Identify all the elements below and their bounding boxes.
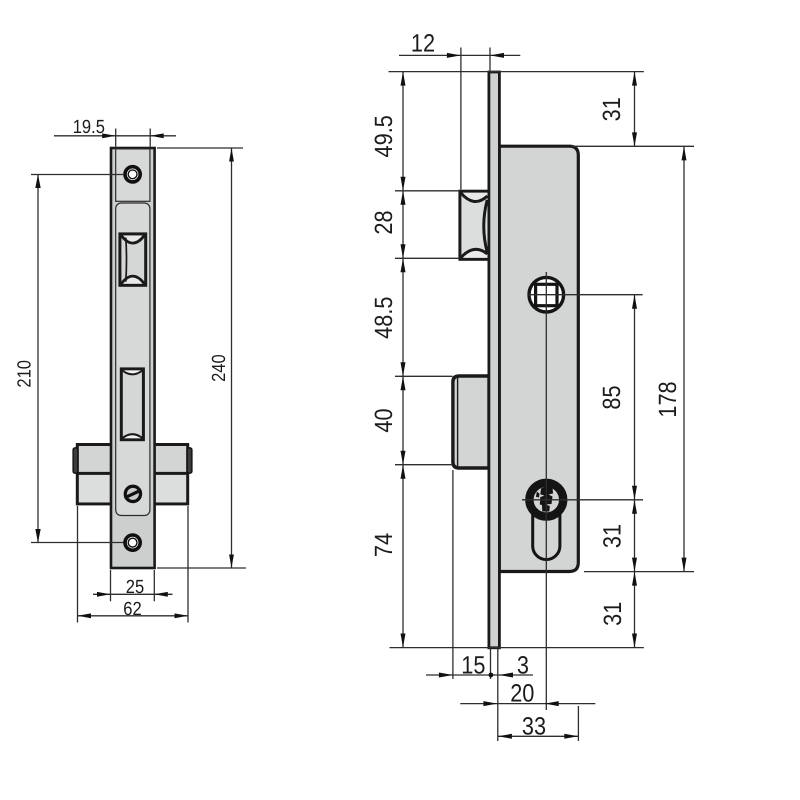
svg-text:31: 31 [599, 602, 627, 626]
svg-text:25: 25 [126, 577, 144, 598]
svg-text:40: 40 [370, 408, 398, 432]
svg-text:210: 210 [15, 360, 36, 388]
svg-text:178: 178 [654, 381, 682, 417]
svg-text:3: 3 [517, 651, 529, 679]
svg-text:31: 31 [599, 524, 627, 548]
svg-text:240: 240 [209, 354, 230, 382]
svg-text:19.5: 19.5 [73, 117, 105, 138]
svg-text:62: 62 [123, 599, 141, 620]
svg-text:12: 12 [411, 30, 435, 58]
svg-text:33: 33 [522, 712, 546, 740]
svg-text:28: 28 [370, 210, 398, 234]
svg-text:31: 31 [598, 97, 626, 121]
svg-text:48.5: 48.5 [370, 297, 398, 339]
svg-text:15: 15 [461, 651, 485, 679]
svg-text:74: 74 [370, 533, 398, 557]
svg-text:49.5: 49.5 [370, 115, 398, 157]
svg-text:20: 20 [510, 680, 534, 708]
svg-text:85: 85 [598, 385, 626, 409]
